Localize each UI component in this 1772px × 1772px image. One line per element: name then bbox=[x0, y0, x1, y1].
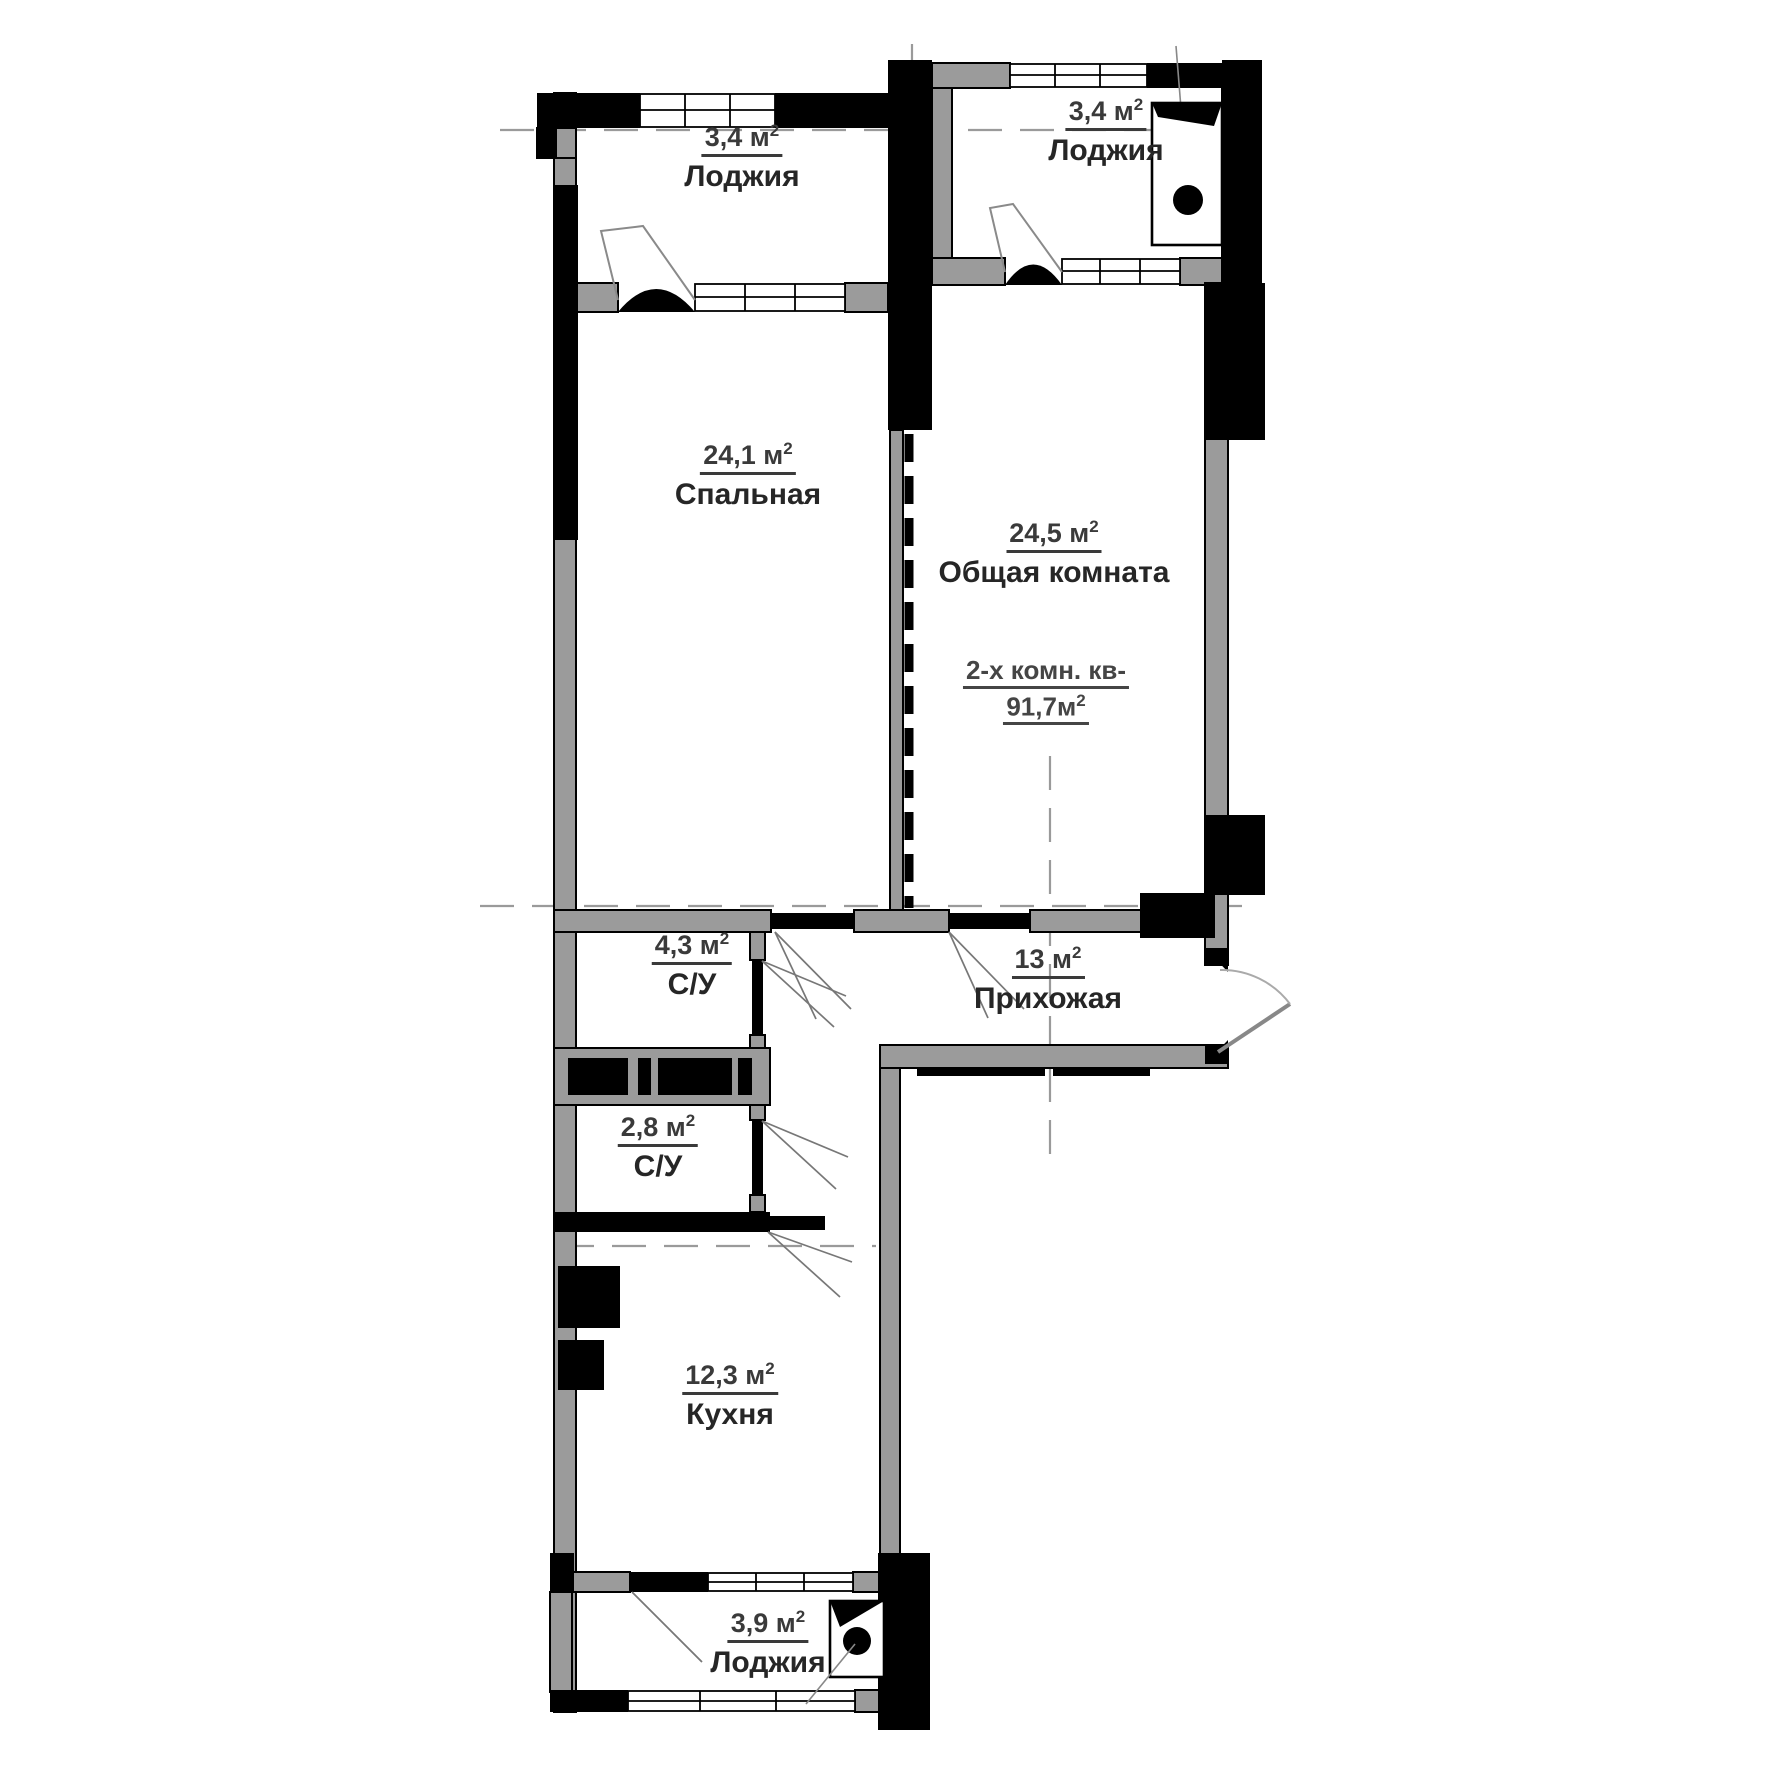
room-label-loggia-top-right: 3,4 м2 Лоджия bbox=[1048, 96, 1163, 166]
apartment-summary: 2-х комн. кв- 91,7м2 bbox=[963, 656, 1129, 725]
room-label-bathroom-1: 4,3 м2 С/У bbox=[652, 930, 732, 1000]
room-area: 3,4 м2 bbox=[1066, 96, 1146, 131]
room-label-living-room: 24,5 м2 Общая комната bbox=[939, 518, 1170, 588]
room-area: 3,4 м2 bbox=[702, 122, 782, 157]
room-label-kitchen: 12,3 м2 Кухня bbox=[682, 1360, 778, 1430]
balcony-door-right bbox=[1005, 265, 1062, 286]
apartment-type: 2-х комн. кв- bbox=[963, 656, 1129, 689]
room-area: 13 м2 bbox=[1012, 944, 1085, 979]
room-name: С/У bbox=[618, 1151, 698, 1183]
room-label-hallway: 13 м2 Прихожая bbox=[974, 944, 1122, 1014]
room-area: 24,5 м2 bbox=[1006, 518, 1102, 553]
room-name: Лоджия bbox=[684, 161, 799, 193]
room-label-bathroom-2: 2,8 м2 С/У bbox=[618, 1112, 698, 1182]
room-name: Лоджия bbox=[1048, 135, 1163, 167]
apartment-total-area: 91,7м2 bbox=[1003, 692, 1088, 725]
room-name: Лоджия bbox=[710, 1647, 825, 1679]
room-name: С/У bbox=[652, 969, 732, 1001]
room-label-loggia-top-left: 3,4 м2 Лоджия bbox=[684, 122, 799, 192]
floorplan-canvas: 3,4 м2 Лоджия 3,4 м2 Лоджия 24,1 м2 Спал… bbox=[0, 0, 1772, 1772]
room-area: 3,9 м2 bbox=[728, 1608, 808, 1643]
room-label-loggia-bottom: 3,9 м2 Лоджия bbox=[710, 1608, 825, 1678]
room-area: 12,3 м2 bbox=[682, 1360, 778, 1395]
entrance-opening bbox=[1202, 966, 1232, 1044]
room-area: 24,1 м2 bbox=[700, 440, 796, 475]
room-name: Прихожая bbox=[974, 983, 1122, 1015]
room-area: 4,3 м2 bbox=[652, 930, 732, 965]
room-label-bedroom: 24,1 м2 Спальная bbox=[675, 440, 821, 510]
room-name: Спальная bbox=[675, 479, 821, 511]
room-name: Кухня bbox=[682, 1399, 778, 1431]
room-area: 2,8 м2 bbox=[618, 1112, 698, 1147]
room-name: Общая комната bbox=[939, 557, 1170, 589]
balcony-door-left bbox=[618, 289, 695, 312]
floorplan-drawing bbox=[0, 0, 1772, 1772]
